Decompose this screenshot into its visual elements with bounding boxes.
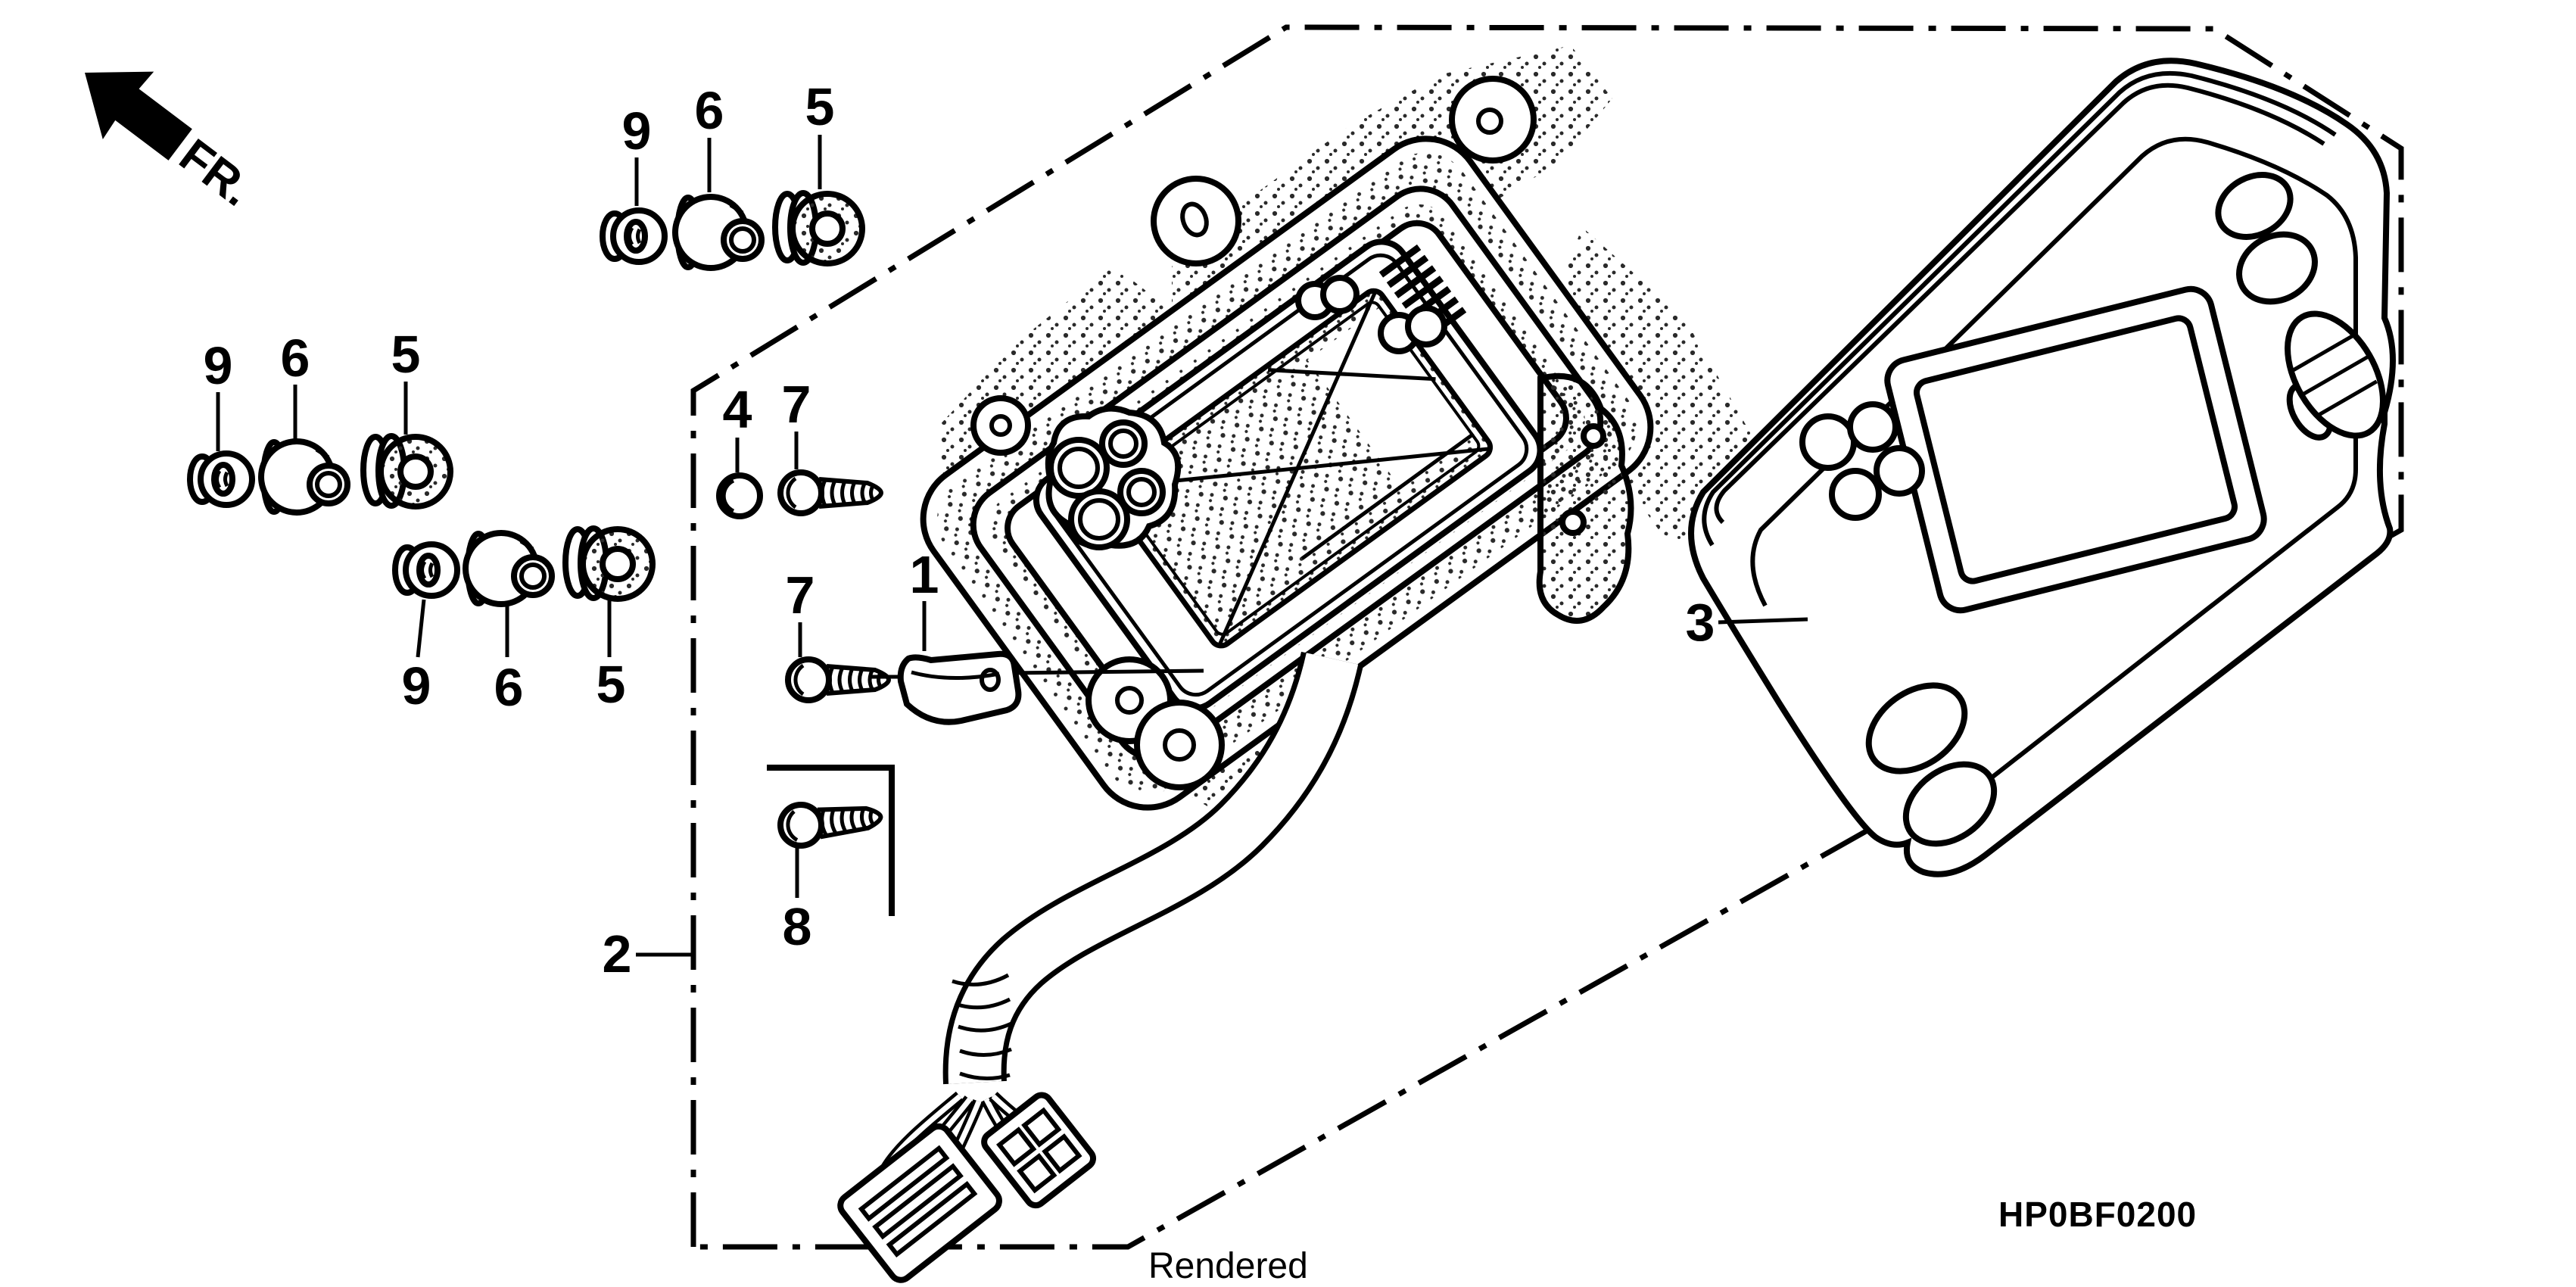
cap-part [719, 475, 760, 516]
grommet-small [603, 210, 665, 262]
parts-diagram-canvas: FR. [0, 0, 2576, 1287]
collar [675, 197, 762, 268]
harness-connector-large [836, 1122, 1004, 1284]
part-label-3: 3 [1686, 593, 1715, 652]
part-label-6-middle: 6 [281, 329, 310, 388]
grommet-large [565, 528, 653, 599]
screw-7-upper [780, 472, 881, 513]
grommet-group-top [603, 193, 862, 268]
part-label-6-top: 6 [695, 81, 724, 140]
diagram-code: HP0BF0200 [1998, 1195, 2197, 1234]
grommet-small [190, 453, 252, 505]
part-label-7-lower: 7 [786, 566, 815, 625]
grommet-group-middle [190, 436, 450, 513]
part-label-5-bottom: 5 [596, 655, 626, 714]
part-label-7-upper: 7 [782, 375, 811, 434]
grommet-group-bottom [395, 528, 653, 604]
part-label-8: 8 [783, 897, 812, 956]
grommet-large [363, 436, 450, 506]
fr-direction-arrow: FR. [59, 39, 272, 229]
screw-7-lower [788, 659, 889, 700]
part-label-1: 1 [910, 545, 939, 604]
fr-label: FR. [170, 129, 262, 217]
parts-diagram-page: FR. [0, 0, 2576, 1287]
part-label-6-bottom: 6 [494, 658, 524, 717]
part-label-9-middle: 9 [204, 336, 233, 395]
grommet-large [775, 193, 862, 263]
part-label-9-top: 9 [622, 101, 652, 160]
part-label-2: 2 [603, 924, 632, 983]
collar [261, 441, 347, 513]
collar [466, 533, 552, 604]
rendered-watermark: Rendered [1148, 1246, 1308, 1286]
cord-clamp [901, 654, 1019, 722]
meter-cover [1691, 61, 2403, 874]
part-label-4: 4 [723, 380, 752, 439]
part-label-9-bottom: 9 [402, 656, 431, 715]
screw-8 [778, 796, 883, 848]
part-label-5-middle: 5 [391, 325, 421, 384]
grommet-small [395, 544, 457, 596]
part-label-5-top: 5 [805, 77, 835, 136]
